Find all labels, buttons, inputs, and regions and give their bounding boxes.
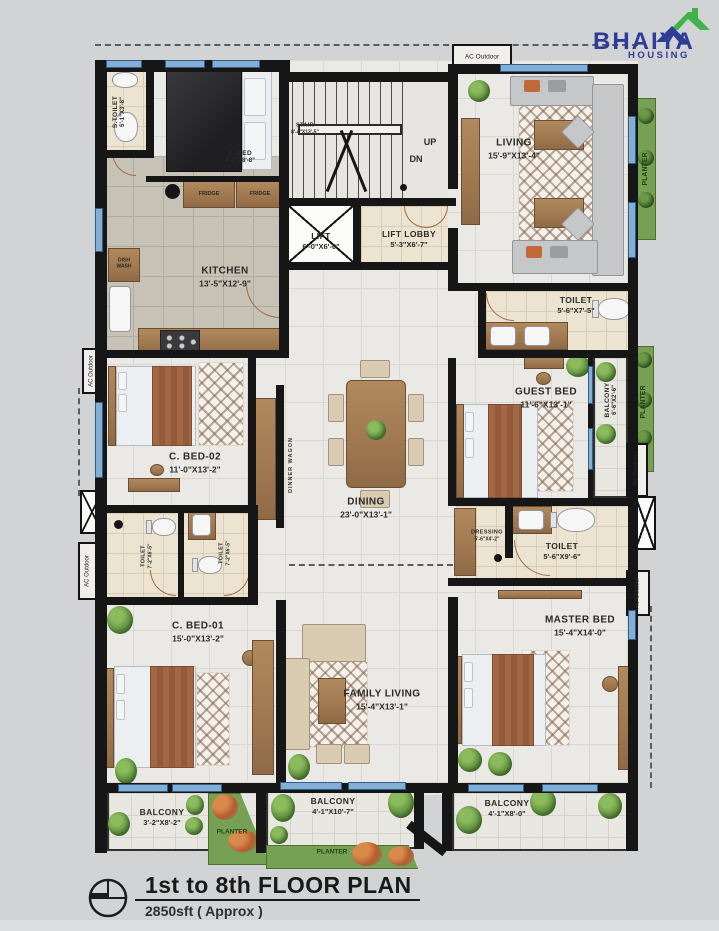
ac-outdoor-label: AC Outdoor [85,555,92,587]
cbed02-desk [128,478,180,492]
room-dims: 6'-6"X2'-6" [612,385,620,415]
plant [596,362,616,382]
guest-bed-pillow [465,412,474,432]
wall [178,513,184,603]
room-label-cbed02: C. BED-02 11'-0"X13'-2" [169,451,221,474]
cbed01-headboard [106,668,114,768]
room-dims: 4'-1"X8'-0" [488,809,525,818]
plant [270,826,288,844]
guest-bed-blanket [488,404,522,498]
room-dims: 5'-1"X3'-8" [120,97,128,127]
room-name: BALCONY [485,798,530,809]
room-label-dressing: DRESSING 5'-6"X4'-2" [471,529,503,542]
plan-subtitle: 2850sft ( Approx ) [145,903,263,919]
window [106,60,142,68]
cbed02-chair [150,464,164,476]
wall [283,198,456,206]
cbed02-pillow [118,394,127,412]
plant [638,192,654,208]
ac-outdoor-label: AC Outdoor [89,355,96,387]
wall [478,291,486,353]
window [172,784,222,792]
room-label-family-living: FAMILY LIVING 15'-4"X13'-1" [344,688,421,711]
plant [636,352,652,368]
master-pillow [464,688,473,708]
plan-title: 1st to 8th FLOOR PLAN [145,872,412,899]
master-pillow [464,662,473,682]
dashed-line-top [95,44,638,46]
room-name: BALCONY [311,796,356,807]
window [468,784,524,792]
wall [442,793,452,851]
guest-bed-pillow [465,438,474,458]
room-dims: 15'-4"X13'-1" [356,701,408,712]
window [542,784,598,792]
plant [186,795,204,815]
room-dims: 8'-4"X13'-5" [291,129,319,135]
door-pivot-dot [494,554,502,562]
window [588,428,593,470]
s-bed-pillow [244,78,266,116]
stair-dn-label: DN [410,155,423,165]
wall [628,64,638,795]
room-label-s-toilet: S.TOILET 5'-1"X3'-8" [112,96,128,128]
room-label-balcony-left: BALCONY 3'-2"X8'-2" [140,807,185,827]
dining-chair [328,394,344,422]
ac-outdoor-label: AC Outdoor [635,577,642,609]
room-dims: 11'-0"X13'-2" [169,464,220,475]
wall [448,64,458,189]
page-foot-band [0,920,719,931]
room-dims: 9'-0"X8'-8" [225,158,255,166]
room-dims: 23'-0"X13'-1" [340,509,392,520]
wall [276,385,284,528]
window [95,208,103,252]
room-name: C. BED-02 [169,451,221,464]
room-label-toilet-mid-right: TOILET 7'-2"X6'-5" [218,541,231,566]
toilet-master-wc-tank [550,512,557,528]
room-name: MASTER BED [545,614,615,627]
dish-wash-label: DISH WASH [112,259,136,270]
plant [468,80,490,102]
room-name: TOILET [218,542,225,564]
wall [146,176,288,182]
guest-desk-chair [536,372,551,385]
wall [276,600,286,790]
plant [271,794,295,822]
toilet-top-wc [598,298,630,320]
ac-outdoor-label: AC Outdoor [634,454,641,486]
plant [115,758,137,784]
plant [598,793,622,819]
dining-chair [408,394,424,422]
toilet-master-sink [518,510,544,530]
master-blanket [492,654,534,746]
cbed01-rug [196,672,230,766]
stove [160,330,200,352]
room-name: TOILET [546,541,578,552]
room-name: C. BED-01 [172,620,224,633]
room-name: TOILET [560,295,592,306]
room-dims: 15'-4"X14'-0" [554,627,606,638]
room-name: DINING [347,496,384,509]
cbed01-wardrobe [252,640,274,775]
dinner-wagon-label: DINNER WAGON [288,437,294,493]
wall [448,358,456,506]
guest-bed-headboard [456,404,464,498]
wall [448,597,458,790]
toilet-mid-sink [192,514,211,536]
plant [456,806,482,834]
family-sofa-top [302,624,366,662]
room-name: S. BED [228,150,252,158]
family-ottoman [344,744,370,764]
window [212,60,260,68]
room-name: S.TOILET [112,96,120,128]
wall [279,60,289,358]
wall [95,350,289,358]
planter-label: PLANTER [640,385,648,418]
window [500,64,588,72]
cbed02-pillow [118,372,127,390]
window [628,116,636,164]
cbed02-headboard [108,366,116,446]
wall [248,505,258,605]
room-dims: 5'-6"X7'-5" [557,306,594,315]
plant [596,424,616,444]
room-name: GUEST BED [515,386,577,399]
family-sofa-left [284,658,310,750]
wall [95,597,258,605]
plant [638,108,654,124]
room-name: LIFT [311,231,331,242]
room-label-master-bed: MASTER BED 15'-4"X14'-0" [545,614,615,637]
room-label-toilet-master: TOILET 5'-6"X9'-6" [543,541,580,561]
wall [626,793,638,851]
room-label-balcony-right: BALCONY 4'-1"X8'-0" [485,798,530,818]
room-label-living: LIVING 15'-9"X13'-4" [488,137,540,160]
window [348,782,406,790]
plant [108,812,130,836]
planter-flowers [352,842,382,866]
logo: BHAIYA HOUSING [570,4,719,62]
room-label-toilet-top: TOILET 5'-6"X7'-5" [557,295,594,315]
master-wardrobe-top [498,590,582,599]
plant [566,355,590,377]
toilet-master-wc [557,508,595,532]
room-dims: 11'-6"X13'-1" [520,399,571,410]
room-label-lift-lobby: LIFT LOBBY 5'-3"X6'-7" [382,229,436,249]
wall [146,60,154,158]
plant [458,748,482,772]
window [628,202,636,258]
room-label-s-bed: S. BED 9'-0"X8'-8" [225,150,255,166]
wall [448,578,638,586]
window [628,610,636,640]
toilet-top-sink [490,326,516,346]
window [588,366,593,404]
wall [95,505,255,513]
ac-outdoor-label: AC Outdoor [460,53,504,60]
plant [185,817,203,835]
room-label-guest-bed: GUEST BED 11'-6"X13'-1" [515,386,577,409]
room-label-cbed01: C. BED-01 15'-0"X13'-2" [172,620,224,643]
title-underline [135,899,420,901]
window [95,402,103,478]
north-compass-icon [86,876,130,920]
kitchen-sink [109,286,131,332]
fridge-label: FRIDGE [250,191,271,197]
wall [248,358,256,510]
dashed-line-right [650,606,652,788]
shower-head [114,520,123,529]
master-stool [602,676,618,692]
room-label-balcony-guest: BALCONY 6'-6"X2'-6" [604,383,620,418]
wall [448,283,638,291]
planter-flowers [212,794,238,820]
plant [488,752,512,776]
room-dims: 5'-3"X6'-7" [390,240,427,249]
sofa-cushion [526,246,542,258]
room-dims: 5'-6"X4'-2" [475,536,500,542]
wall [505,506,513,558]
kitchen-appliance [165,184,180,199]
planter-label: PLANTER [317,848,348,855]
wall [283,262,456,270]
room-label-toilet-mid-left: TOILET 7'-2"X6'-5" [140,544,153,569]
room-name: LIVING [496,137,532,150]
planter-flowers [388,846,414,866]
plant [366,420,386,440]
plant [288,754,310,780]
wall [283,72,455,82]
cbed01-blanket [150,666,194,768]
room-name: STAIR [296,122,314,129]
fridge-label: FRIDGE [199,191,220,197]
room-dims: 4'-1"X10'-7" [312,807,354,816]
planter-label: PLANTER [217,828,248,835]
plant [107,606,133,634]
room-dims: 5'-6"X9'-6" [543,552,580,561]
room-label-stair: STAIR 8'-4"X13'-5" [291,122,319,135]
room-dims: 6'-0"X6'-0" [302,242,339,251]
s-toilet-sink [112,72,138,88]
family-coffee-table [318,678,346,724]
room-label-kitchen: KITCHEN 13'-5"X12'-9" [199,265,251,288]
room-dims: 7'-2"X6'-5" [147,544,153,569]
toilet-mid-wc [152,518,176,536]
toilet-top-sink [524,326,550,346]
room-name: FAMILY LIVING [344,688,421,701]
door-pivot-dot [400,184,407,191]
room-name: DRESSING [471,529,503,536]
tv-cabinet [461,118,480,225]
window [118,784,168,792]
cbed01-pillow [116,674,125,694]
wall [95,150,154,158]
room-name: KITCHEN [201,265,248,278]
stair-up-label: UP [424,138,437,148]
wall [448,228,458,291]
sofa-cushion [524,80,540,92]
wall [95,793,107,853]
window [280,782,342,790]
planter-label: PLANTER [642,152,650,185]
room-dims: 15'-9"X13'-4" [488,150,540,161]
room-name: TOILET [140,545,147,567]
dashed-line-left [78,388,80,496]
sofa-cushion [548,80,566,92]
floor-plan-sheet: AC Outdoor AC Outdoor AC Outdoor AC Outd… [0,0,719,931]
room-label-lift: LIFT 6'-0"X6'-0" [302,231,339,251]
cbed01-pillow [116,700,125,720]
dining-chair [408,438,424,466]
room-dims: 15'-0"X13'-2" [172,633,224,644]
cbed02-rug [198,362,244,446]
sofa-cushion [550,246,568,258]
room-label-dining: DINING 23'-0"X13'-1" [340,496,392,519]
room-dims: 7'-2"X6'-5" [225,541,231,566]
window [165,60,205,68]
wall [478,350,638,358]
logo-sub-text: HOUSING [628,50,690,61]
room-name: BALCONY [140,807,185,818]
cbed02-blanket [152,366,192,446]
dashed-line-dining [289,564,453,566]
wall [448,498,638,506]
room-label-balcony-mid: BALCONY 4'-1"X10'-7" [311,796,356,816]
dining-chair [360,360,390,378]
room-name: BALCONY [604,383,612,418]
room-name: LIFT LOBBY [382,229,436,240]
room-dims: 13'-5"X12'-9" [199,278,251,289]
room-dims: 3'-2"X8'-2" [143,818,180,827]
wall [353,198,361,270]
wall [256,793,266,853]
dining-chair [328,438,344,466]
family-ottoman [316,744,342,764]
